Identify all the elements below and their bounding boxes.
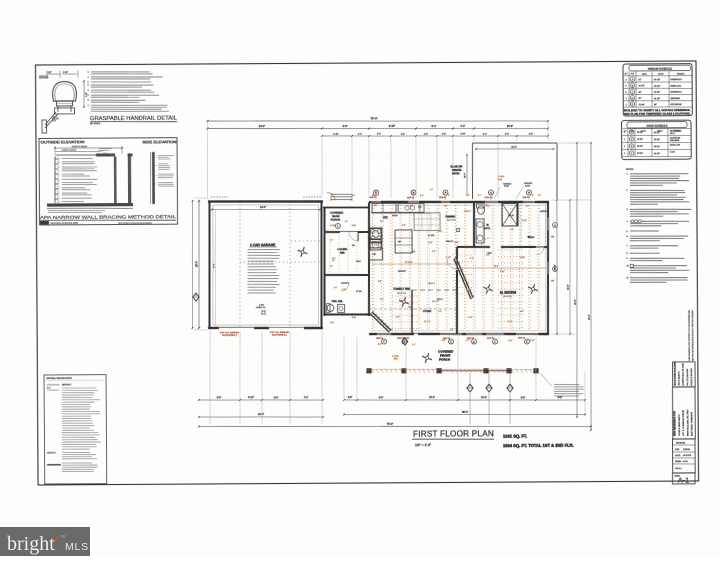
svg-text:D.R.M.: D.R.M. xyxy=(683,461,689,463)
svg-text:TILE SH.: TILE SH. xyxy=(508,215,515,217)
svg-text:3-1/2": 3-1/2" xyxy=(446,257,451,259)
svg-text:DBLE ENT,DR: DBLE ENT,DR xyxy=(670,131,681,133)
svg-text:3'-8": 3'-8" xyxy=(352,195,355,197)
svg-text:38'-0": 38'-0" xyxy=(462,411,468,414)
svg-text:5'-2": 5'-2" xyxy=(466,340,470,342)
svg-text:2'-6": 2'-6" xyxy=(330,265,333,267)
svg-text:A: A xyxy=(445,191,447,195)
svg-text:TM: TM xyxy=(61,535,66,539)
svg-text:3'-0": 3'-0" xyxy=(374,205,377,207)
svg-text:2'-6": 2'-6" xyxy=(484,205,488,207)
svg-text:3-1/2": 3-1/2" xyxy=(522,220,527,222)
svg-text:EGRESS B.O.: EGRESS B.O. xyxy=(670,92,682,94)
svg-text:4" CONC.: 4" CONC. xyxy=(392,356,400,358)
svg-text:45'-8": 45'-8" xyxy=(589,314,591,320)
svg-text:1934 SQ. FT. TOTAL 1ST & 2ND F: 1934 SQ. FT. TOTAL 1ST & 2ND FLR. xyxy=(503,443,574,448)
svg-text:4'-6": 4'-6" xyxy=(348,397,353,399)
svg-text:8'-1": 8'-1" xyxy=(431,125,436,128)
svg-text:QUARRYVILLE, PA 17566: QUARRYVILLE, PA 17566 xyxy=(682,363,685,385)
svg-text:34 1/2": 34 1/2" xyxy=(637,139,643,141)
svg-text:34 1/2": 34 1/2" xyxy=(637,153,643,155)
svg-text:C: C xyxy=(494,340,496,344)
svg-text:8'-0": 8'-0" xyxy=(217,397,222,399)
svg-text:(TYP): (TYP) xyxy=(52,120,56,122)
svg-text:2'-6": 2'-6" xyxy=(412,344,416,346)
svg-text:75'-0": 75'-0" xyxy=(370,116,377,120)
svg-text:46 1/2": 46 1/2" xyxy=(654,98,661,100)
svg-text:TEMPERED: TEMPERED xyxy=(503,183,512,185)
svg-text:3-1/2": 3-1/2" xyxy=(454,242,459,244)
svg-text:12'-9": 12'-9" xyxy=(494,266,499,268)
svg-text:4'-0": 4'-0" xyxy=(47,388,51,390)
svg-text:FIRST FLOOR PLAN: FIRST FLOOR PLAN xyxy=(413,429,494,438)
svg-text:JOHN & JANE SMITH: JOHN & JANE SMITH xyxy=(678,414,681,436)
svg-text:46 1/2": 46 1/2" xyxy=(654,92,661,94)
svg-text:36": 36" xyxy=(638,92,641,94)
svg-text:80 1/2": 80 1/2" xyxy=(654,132,660,134)
svg-text:WIDTH: WIDTH xyxy=(642,74,647,76)
svg-text:SHELVES: SHELVES xyxy=(540,211,547,213)
svg-text:28'-0": 28'-0" xyxy=(196,261,199,267)
svg-text:3-1/2": 3-1/2" xyxy=(530,340,535,342)
svg-text:2 CAR GARAGE: 2 CAR GARAGE xyxy=(250,243,276,247)
svg-text:80 1/2": 80 1/2" xyxy=(654,139,660,141)
svg-text:QTY: QTY xyxy=(624,74,627,76)
svg-text:PDR. RM.: PDR. RM. xyxy=(331,300,343,303)
svg-text:9'-1": 9'-1" xyxy=(466,290,470,292)
svg-text:4" CONC.: 4" CONC. xyxy=(498,176,505,178)
svg-text:9'-1": 9'-1" xyxy=(442,340,446,342)
svg-text:2WIDE & EG.: 2WIDE & EG. xyxy=(670,85,681,87)
svg-text:HEIGHT: HEIGHT xyxy=(658,74,664,76)
svg-text:9'-1": 9'-1" xyxy=(470,258,474,260)
svg-text:PATIO DR: PATIO DR xyxy=(484,196,493,199)
svg-text:80 1/2": 80 1/2" xyxy=(654,153,660,155)
svg-text:DOOR W/ B/S: DOOR W/ B/S xyxy=(670,138,680,140)
svg-text:6'-0": 6'-0" xyxy=(379,397,384,399)
svg-text:EAST EARL TOWNSHIP: EAST EARL TOWNSHIP xyxy=(691,411,694,436)
svg-text:3'-0": 3'-0" xyxy=(334,287,337,289)
svg-text:EGRESS B.O.: EGRESS B.O. xyxy=(670,79,682,81)
svg-text:6'-5": 6'-5" xyxy=(529,134,533,136)
svg-text:MLS: MLS xyxy=(65,541,89,553)
svg-text:6'-8": 6'-8" xyxy=(520,311,524,313)
svg-text:1: 1 xyxy=(624,153,625,155)
svg-text:FOYER: FOYER xyxy=(423,310,432,313)
svg-text:4" STEP: 4" STEP xyxy=(330,225,336,227)
svg-text:KIT.: KIT. xyxy=(383,215,388,219)
svg-text:7'-5": 7'-5" xyxy=(408,306,412,308)
svg-text:300 W. MAIN ST.: 300 W. MAIN ST. xyxy=(678,371,681,386)
svg-text:8'-2": 8'-2" xyxy=(558,397,563,399)
svg-text:18-0 X 14-8: 18-0 X 14-8 xyxy=(397,293,406,295)
svg-text:46 1/2": 46 1/2" xyxy=(638,86,645,88)
svg-text:24'-0": 24'-0" xyxy=(259,125,265,128)
svg-text:XXXXXXXX: XXXXXXXX xyxy=(47,452,56,454)
svg-text:RM.: RM. xyxy=(340,251,345,255)
svg-text:3-1/2": 3-1/2" xyxy=(500,271,505,273)
svg-text:3'-0": 3'-0" xyxy=(410,205,413,207)
svg-text:16" O.C.: 16" O.C. xyxy=(432,301,439,303)
svg-text:SIDE ELEVATION: SIDE ELEVATION xyxy=(142,140,177,144)
svg-text:68 1/2": 68 1/2" xyxy=(637,132,643,134)
svg-text:A: A xyxy=(554,223,556,227)
svg-text:24'-0": 24'-0" xyxy=(258,413,264,416)
svg-text:B: B xyxy=(413,191,415,195)
svg-text:60": 60" xyxy=(638,98,641,100)
svg-text:7-9 X: 7-9 X xyxy=(332,258,336,260)
svg-text:13-0 X 15-2: 13-0 X 15-2 xyxy=(503,296,512,298)
svg-text:3246: 3246 xyxy=(551,280,554,282)
svg-text:A-1: A-1 xyxy=(678,476,689,485)
svg-text:36": 36" xyxy=(654,104,657,106)
svg-text:5'-2": 5'-2" xyxy=(330,239,333,241)
svg-text:3246: 3246 xyxy=(551,236,554,238)
svg-text:24'-0": 24'-0" xyxy=(260,206,266,209)
svg-text:5'-1": 5'-1" xyxy=(483,134,487,136)
svg-text:WINDOW SCHEDULE: WINDOW SCHEDULE xyxy=(648,68,673,71)
svg-text:28 1/2": 28 1/2" xyxy=(637,146,643,148)
svg-text:CHK: B.L.: CHK: B.L. xyxy=(675,468,683,470)
svg-text:5'-2": 5'-2" xyxy=(402,225,406,227)
svg-text:7'-2": 7'-2" xyxy=(304,397,309,399)
svg-text:W/ S.L.: W/ S.L. xyxy=(670,133,676,135)
svg-text:2X10 FJ: 2X10 FJ xyxy=(372,195,379,197)
svg-text:9'-1": 9'-1" xyxy=(396,317,400,319)
svg-text:DOOR SCHEDULE: DOOR SCHEDULE xyxy=(647,125,668,128)
svg-text:BUILDER TO VERIFY ALL ROUGH OP: BUILDER TO VERIFY ALL ROUGH OPENINGS. xyxy=(624,108,691,112)
svg-text:10'-0": 10'-0" xyxy=(465,172,467,178)
svg-text:80 1/2": 80 1/2" xyxy=(654,146,660,148)
svg-text:OUTSIDE ELEVATION: OUTSIDE ELEVATION xyxy=(40,140,85,144)
svg-text:PORCH: PORCH xyxy=(439,357,451,361)
svg-text:4'-1": 4'-1" xyxy=(478,195,481,197)
svg-text:6-0: 6-0 xyxy=(332,260,334,262)
svg-text:12/8/2020: 12/8/2020 xyxy=(683,449,690,451)
svg-text:DOOR & LITE: DOOR & LITE xyxy=(670,145,680,147)
svg-text:3-1/2": 3-1/2" xyxy=(342,289,347,291)
svg-text:4'-10": 4'-10" xyxy=(460,134,466,136)
svg-text:3646 SH: 3646 SH xyxy=(518,338,526,340)
svg-text:46 1/2": 46 1/2" xyxy=(654,79,661,81)
svg-text:APA WALL BRACING NOTE: APA WALL BRACING NOTE xyxy=(46,377,72,380)
svg-text:15'-6": 15'-6" xyxy=(507,125,513,128)
svg-text:2'-6": 2'-6" xyxy=(438,311,442,313)
svg-text:R-21: R-21 xyxy=(508,321,512,323)
svg-text:9 LITE: 9 LITE xyxy=(670,152,675,154)
svg-text:SHELF: SHELF xyxy=(356,261,361,263)
svg-text:3-1/2": 3-1/2" xyxy=(468,317,473,319)
svg-text:12'-8": 12'-8" xyxy=(511,147,517,149)
svg-text:METHOD 3: METHOD 3 xyxy=(62,384,71,386)
svg-text:W.I.C.: W.I.C. xyxy=(527,235,534,239)
svg-text:2'-6": 2'-6" xyxy=(420,195,424,197)
svg-text:NEW HOLLAND, PA 17557: NEW HOLLAND, PA 17557 xyxy=(686,409,689,436)
svg-text:3646 SH: 3646 SH xyxy=(376,338,384,340)
svg-text:bright: bright xyxy=(7,533,55,555)
svg-text:M. BEDRM: M. BEDRM xyxy=(500,291,516,295)
svg-text:3'-4": 3'-4" xyxy=(442,134,446,136)
svg-text:SEE DETAILS ON BRACING SHEET: SEE DETAILS ON BRACING SHEET xyxy=(50,222,78,225)
svg-text:PORCH: PORCH xyxy=(330,218,340,222)
svg-text:4'-1": 4'-1" xyxy=(460,125,465,128)
svg-text:6'-1": 6'-1" xyxy=(345,221,348,223)
svg-text:1: 1 xyxy=(624,139,625,141)
svg-text:1241 SQ. FT.: 1241 SQ. FT. xyxy=(503,433,527,438)
svg-text:R-21: R-21 xyxy=(352,225,356,227)
svg-text:MAY NOT BE REPRODUCED WITHOUT: MAY NOT BE REPRODUCED WITHOUT WRITTEN CO… xyxy=(691,309,694,361)
svg-text:PH: (717) 555-0199: PH: (717) 555-0199 xyxy=(687,369,689,386)
svg-text:34'-8": 34'-8" xyxy=(575,299,577,305)
svg-text:6'-8": 6'-8" xyxy=(446,195,450,197)
svg-text:D: D xyxy=(473,340,475,344)
svg-text:THIS DRAWING IS THE PROPERTY O: THIS DRAWING IS THE PROPERTY OF THE DESI… xyxy=(688,309,691,361)
svg-text:2'-6": 2'-6" xyxy=(530,195,534,197)
svg-text:A: A xyxy=(528,191,530,195)
svg-text:9'-1": 9'-1" xyxy=(432,251,436,253)
svg-text:6'-8": 6'-8" xyxy=(450,329,454,331)
svg-text:KITCHEN 3W: KITCHEN 3W xyxy=(670,104,681,106)
svg-text:75'-0": 75'-0" xyxy=(387,422,394,426)
svg-text:2 1/4": 2 1/4" xyxy=(63,72,68,74)
svg-text:C: C xyxy=(383,340,385,344)
svg-text:72 3/4": 72 3/4" xyxy=(638,104,645,106)
svg-text:1: 1 xyxy=(624,132,625,134)
svg-text:2X10 FJ: 2X10 FJ xyxy=(464,211,471,213)
svg-text:5'-2": 5'-2" xyxy=(486,255,490,257)
svg-text:R-21: R-21 xyxy=(438,231,442,233)
svg-text:8'-0": 8'-0" xyxy=(342,125,347,128)
svg-text:FAX:(717) 555-0190: FAX:(717) 555-0190 xyxy=(690,368,693,385)
svg-text:11-2 X 13-0: 11-2 X 13-0 xyxy=(447,220,456,222)
svg-text:DINING: DINING xyxy=(445,214,455,218)
svg-text:4'-10": 4'-10" xyxy=(248,397,254,399)
svg-text:2'-8": 2'-8" xyxy=(444,205,447,207)
svg-text:6'-0": 6'-0" xyxy=(274,397,279,399)
svg-text:27'-4": 27'-4" xyxy=(214,263,216,268)
svg-text:LOT 4, PLEASANT DRIVE: LOT 4, PLEASANT DRIVE xyxy=(682,410,685,436)
svg-text:BATH: BATH xyxy=(483,227,490,230)
svg-text:10'-2": 10'-2" xyxy=(429,397,435,399)
svg-text:1: 1 xyxy=(624,146,625,148)
svg-text:26'-0": 26'-0" xyxy=(555,264,557,270)
svg-text:NO SCALE: NO SCALE xyxy=(90,122,101,125)
svg-text:3-1/2": 3-1/2" xyxy=(520,257,525,259)
svg-text:5'-2": 5'-2" xyxy=(378,281,382,283)
svg-text:3'-1": 3'-1" xyxy=(358,134,362,136)
svg-text:NEW RESIDENCE FOR: NEW RESIDENCE FOR xyxy=(674,411,676,436)
svg-text:1/4" = 1'-0": 1/4" = 1'-0" xyxy=(415,443,432,447)
svg-text:3646 SH: 3646 SH xyxy=(487,338,495,340)
svg-text:R-21: R-21 xyxy=(330,322,334,324)
svg-text:6'-8": 6'-8" xyxy=(510,229,514,231)
svg-text:TEMPERED: TEMPERED xyxy=(524,183,533,185)
svg-text:DW: DW xyxy=(398,241,401,243)
svg-text:6'-10": 6'-10" xyxy=(333,134,339,136)
svg-text:4'-0": 4'-0" xyxy=(505,134,509,136)
svg-text:SEE PLAN FOR TEMPERED GLASS LO: SEE PLAN FOR TEMPERED GLASS LOCATIONS. xyxy=(624,112,691,116)
svg-text:C: C xyxy=(450,340,452,344)
svg-text:DOOR (INSUL.): DOOR (INSUL.) xyxy=(222,335,237,337)
svg-text:5'-2": 5'-2" xyxy=(374,245,378,247)
svg-text:3-1/2": 3-1/2" xyxy=(428,242,433,244)
svg-text:46 1/2": 46 1/2" xyxy=(654,86,661,88)
svg-text:8'-0": 8'-0" xyxy=(521,397,526,399)
svg-text:4'-1": 4'-1" xyxy=(377,134,381,136)
svg-text:5'-2": 5'-2" xyxy=(380,221,384,223)
svg-text:DOOR (INSUL.): DOOR (INSUL.) xyxy=(272,335,287,337)
svg-text:8'-1": 8'-1" xyxy=(430,189,433,191)
svg-text:13'-4 1/2": 13'-4 1/2" xyxy=(405,262,413,264)
svg-text:FAMILY RM.: FAMILY RM. xyxy=(393,287,410,291)
svg-text:5'-2": 5'-2" xyxy=(380,299,384,301)
svg-text:5'-2": 5'-2" xyxy=(378,344,382,346)
svg-text:NOTES: NOTES xyxy=(626,169,634,171)
svg-text:2'-3": 2'-3" xyxy=(538,195,541,197)
svg-text:C: C xyxy=(526,340,528,344)
svg-text:10'-2": 10'-2" xyxy=(481,397,487,399)
svg-text:REVISIONS: REVISIONS xyxy=(676,443,686,445)
svg-text:2WD/TEMP: 2WD/TEMP xyxy=(670,98,680,100)
svg-text:CONC. FL.: CONC. FL. xyxy=(256,307,266,309)
svg-text:3-1/2": 3-1/2" xyxy=(508,340,513,342)
svg-text:5'-2": 5'-2" xyxy=(466,195,470,197)
svg-text:1 1/2": 1 1/2" xyxy=(46,72,51,74)
svg-text:R-21: R-21 xyxy=(352,317,356,319)
svg-text:SINK: SINK xyxy=(418,206,422,208)
svg-text:4 1/2": 4 1/2" xyxy=(259,304,264,306)
svg-text:9'-10": 9'-10" xyxy=(389,125,395,128)
svg-text:32": 32" xyxy=(638,79,641,81)
svg-text:4'-0": 4'-0" xyxy=(424,134,428,136)
svg-text:REF: REF xyxy=(372,254,375,256)
svg-text:ECLIP HOME BUILDERS: ECLIP HOME BUILDERS xyxy=(674,361,676,386)
svg-text:22'-8": 22'-8" xyxy=(568,284,570,290)
svg-text:42" HIGH: 42" HIGH xyxy=(428,235,434,237)
svg-text:2X10 FJ: 2X10 FJ xyxy=(428,283,435,285)
svg-text:16" O.C.: 16" O.C. xyxy=(424,321,431,323)
svg-text:4'-6": 4'-6" xyxy=(401,134,405,136)
svg-text:3'-0": 3'-0" xyxy=(526,205,529,207)
